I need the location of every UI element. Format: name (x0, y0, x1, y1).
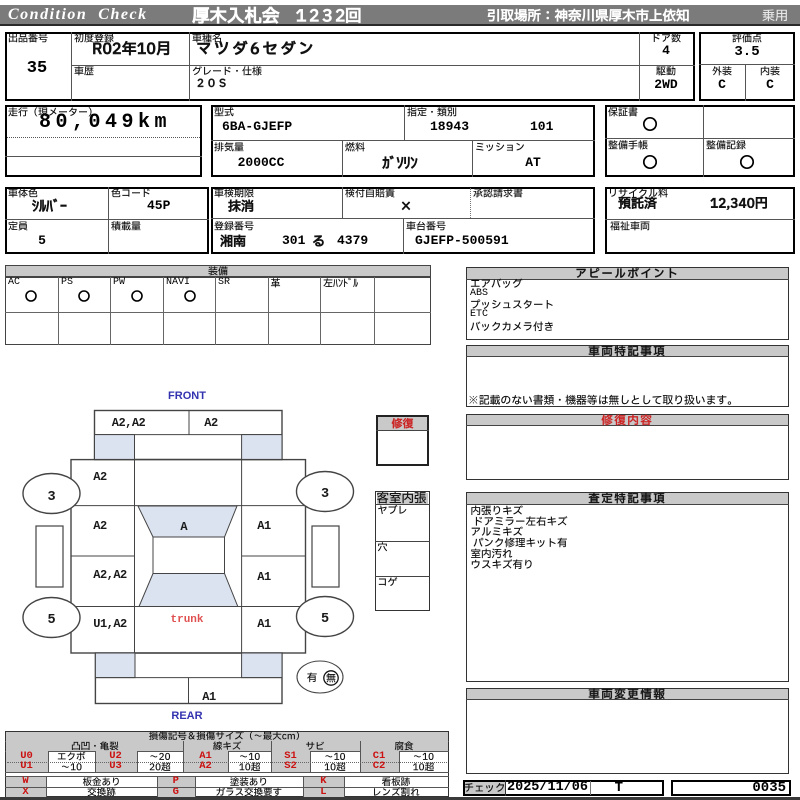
svg-text:5: 5 (47, 613, 55, 628)
svg-text:3: 3 (47, 490, 55, 505)
svg-text:REAR: REAR (171, 710, 202, 722)
svg-text:3: 3 (321, 487, 329, 502)
svg-text:5: 5 (321, 612, 329, 627)
svg-text:A: A (180, 520, 188, 534)
svg-text:FRONT: FRONT (168, 390, 206, 402)
